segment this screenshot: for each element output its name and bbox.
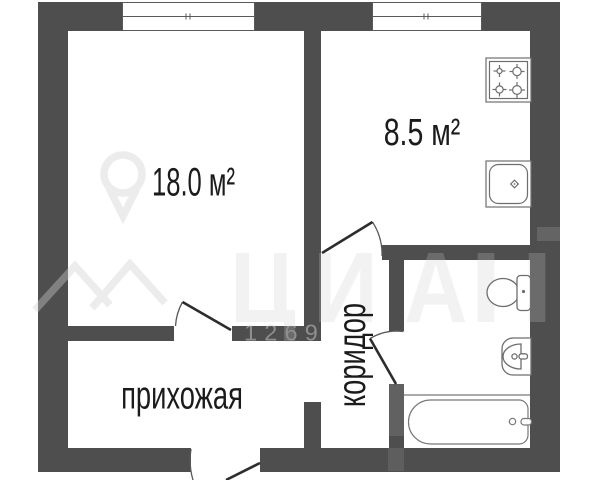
svg-text:прихожая: прихожая bbox=[121, 375, 243, 418]
svg-text:18.0 м²: 18.0 м² bbox=[152, 161, 235, 205]
svg-text:8.5 м²: 8.5 м² bbox=[384, 112, 461, 154]
svg-text:коридор: коридор bbox=[332, 303, 375, 407]
